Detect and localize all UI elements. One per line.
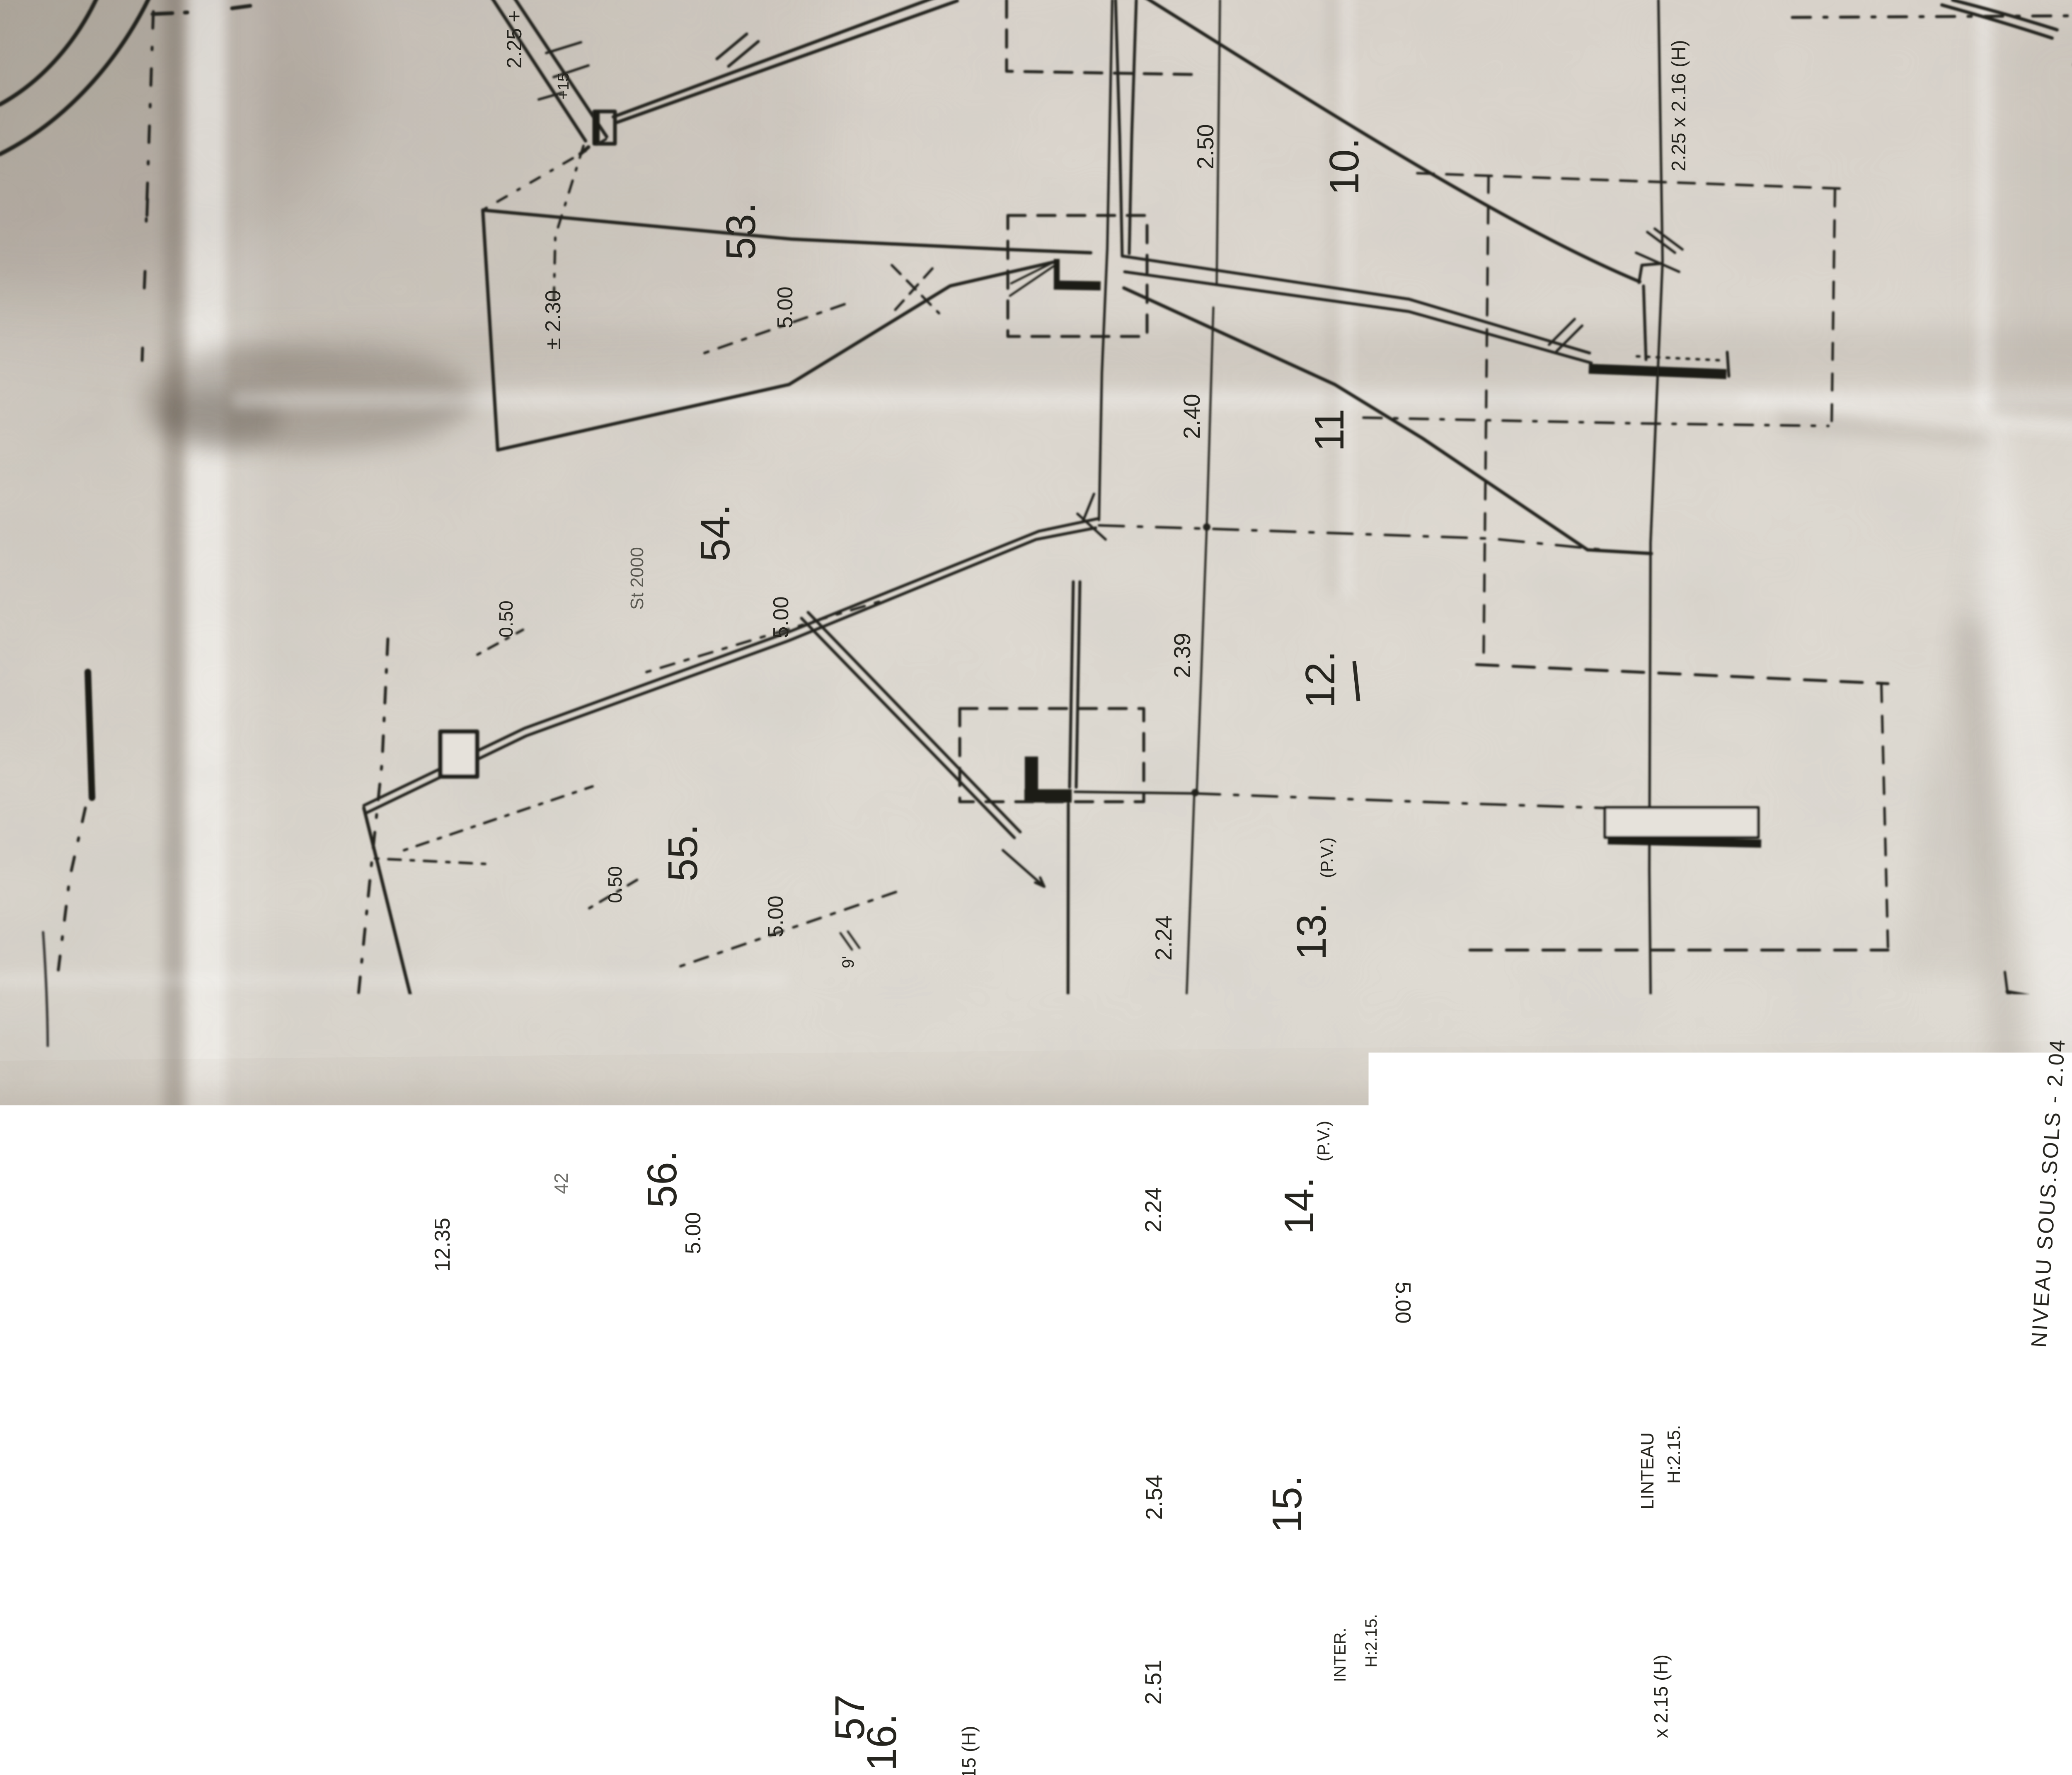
svg-text:55.: 55. [660, 824, 706, 881]
svg-text:x 2.15 (H): x 2.15 (H) [1650, 1654, 1672, 1738]
svg-text:54.: 54. [692, 504, 738, 561]
svg-text:St 2000: St 2000 [627, 547, 647, 610]
svg-text:(P.V.): (P.V.) [1317, 837, 1336, 878]
svg-text:2.54: 2.54 [1141, 1475, 1167, 1520]
svg-text:11: 11 [1306, 409, 1353, 452]
svg-text:0.50: 0.50 [604, 866, 626, 903]
svg-text:5.00: 5.00 [769, 596, 793, 638]
svg-text:2.24: 2.24 [1140, 1187, 1166, 1233]
svg-text:(P.V.): (P.V.) [1314, 1121, 1333, 1161]
svg-text:2.39: 2.39 [1169, 633, 1195, 678]
svg-text:2.25 +: 2.25 + [503, 10, 526, 68]
svg-text:5.00: 5.00 [764, 895, 788, 937]
svg-text:2.50: 2.50 [1192, 124, 1218, 169]
svg-text:15.: 15. [1264, 1475, 1310, 1533]
svg-text:LINTEAU: LINTEAU [1637, 1432, 1658, 1509]
svg-text:H:2.15.: H:2.15. [1664, 1425, 1684, 1484]
svg-text:X 2.15 (H): X 2.15 (H) [958, 1726, 980, 1775]
svg-text:9': 9' [839, 956, 857, 968]
svg-text:13.: 13. [1288, 902, 1335, 960]
svg-text:5.00: 5.00 [681, 1212, 705, 1254]
svg-text:2.25 x 2.16 (H): 2.25 x 2.16 (H) [1668, 40, 1690, 171]
svg-text:+15: +15 [555, 73, 572, 99]
svg-text:± 2.30: ± 2.30 [541, 290, 565, 350]
svg-text:5.00: 5.00 [1391, 1282, 1415, 1323]
svg-text:2.24: 2.24 [1150, 916, 1176, 961]
svg-text:H:2.15.: H:2.15. [1362, 1614, 1380, 1668]
svg-text:INTER.: INTER. [1331, 1627, 1349, 1682]
svg-text:2.51: 2.51 [1140, 1660, 1166, 1705]
svg-text:56.: 56. [639, 1150, 685, 1208]
svg-text:10.: 10. [1321, 138, 1368, 195]
svg-text:2.40: 2.40 [1179, 394, 1205, 439]
svg-text:5.00: 5.00 [773, 286, 797, 328]
svg-text:12.35: 12.35 [431, 1218, 455, 1272]
svg-text:0.50: 0.50 [495, 600, 517, 638]
svg-text:16.: 16. [859, 1713, 905, 1771]
svg-text:12.: 12. [1297, 651, 1343, 708]
svg-text:14.: 14. [1276, 1177, 1322, 1234]
svg-text:53.: 53. [718, 202, 764, 260]
svg-text:42: 42 [550, 1173, 572, 1194]
